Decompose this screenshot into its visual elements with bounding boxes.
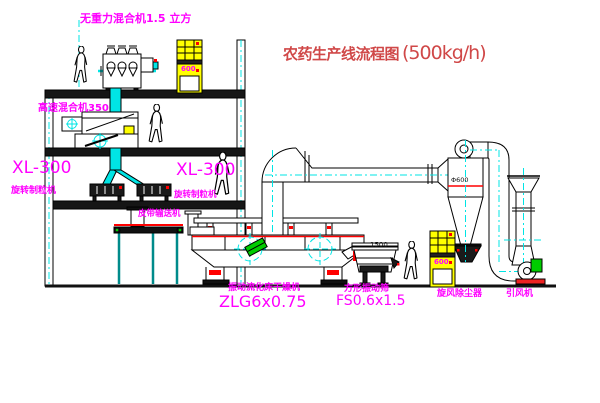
label-cyclone-dimension: Φ600 — [451, 177, 469, 184]
label-high-speed-mixer: 高速混合机350 — [38, 104, 109, 114]
label-cabinet-right-marking: 600 — [434, 259, 449, 266]
label-granulator-left-name: 旋转制粒机 — [11, 187, 56, 196]
label-granulator-right-model: XL-300 — [176, 162, 235, 179]
label-granulator-right-name: 旋转制粒机 — [174, 191, 217, 200]
label-sieve-dimension: 1500 — [370, 242, 388, 249]
label-fan: 引风机 — [506, 290, 533, 299]
operator-figure — [74, 46, 87, 82]
high-speed-mixer-drawing — [62, 112, 138, 172]
operator-figure — [404, 241, 417, 279]
pesticide-line-flow-diagram: 农药生产线流程图 (500kg/h) 无重力混合机1.5 立方 高速混合机350… — [0, 0, 600, 403]
label-cyclone: 旋风除尘器 — [437, 290, 482, 299]
label-cabinet-top-marking: 600 — [181, 66, 196, 73]
label-gravity-mixer: 无重力混合机1.5 立方 — [80, 13, 191, 24]
title-text: 农药生产线流程图 — [283, 47, 399, 62]
operator-figure — [149, 104, 162, 142]
granulators-drawing — [90, 184, 171, 201]
label-dryer-model: ZLG6x0.75 — [219, 294, 307, 310]
title-capacity: (500kg/h) — [402, 44, 486, 63]
label-sieve-model: FS0.6x1.5 — [336, 294, 406, 308]
label-belt-conveyor: 皮带输送机 — [138, 210, 181, 219]
label-granulator-left-model: XL-300 — [12, 160, 71, 177]
sieve-drawing — [352, 243, 400, 286]
diagram-title: 农药生产线流程图 (500kg/h) — [283, 44, 486, 63]
